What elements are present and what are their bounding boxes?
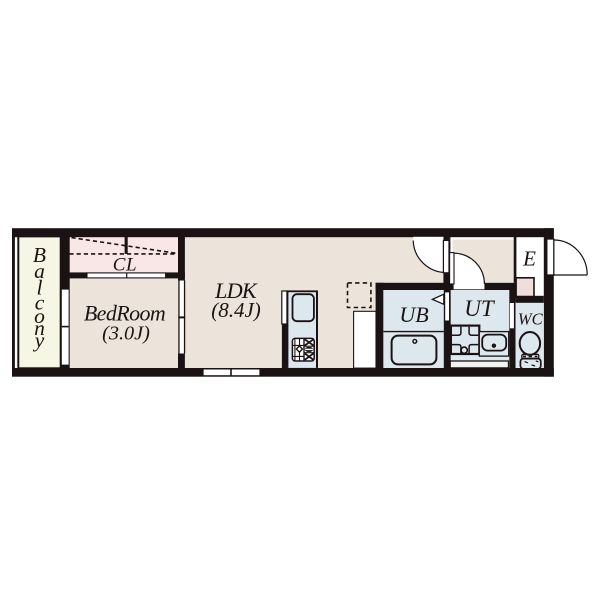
svg-text:(3.0J): (3.0J) xyxy=(102,323,150,345)
svg-text:(8.4J): (8.4J) xyxy=(211,298,261,322)
svg-text:y: y xyxy=(33,328,45,352)
svg-text:WC: WC xyxy=(518,309,544,328)
svg-text:UT: UT xyxy=(464,296,496,321)
svg-text:UB: UB xyxy=(399,302,428,327)
svg-text:CL: CL xyxy=(113,254,137,275)
svg-text:E: E xyxy=(522,246,536,270)
